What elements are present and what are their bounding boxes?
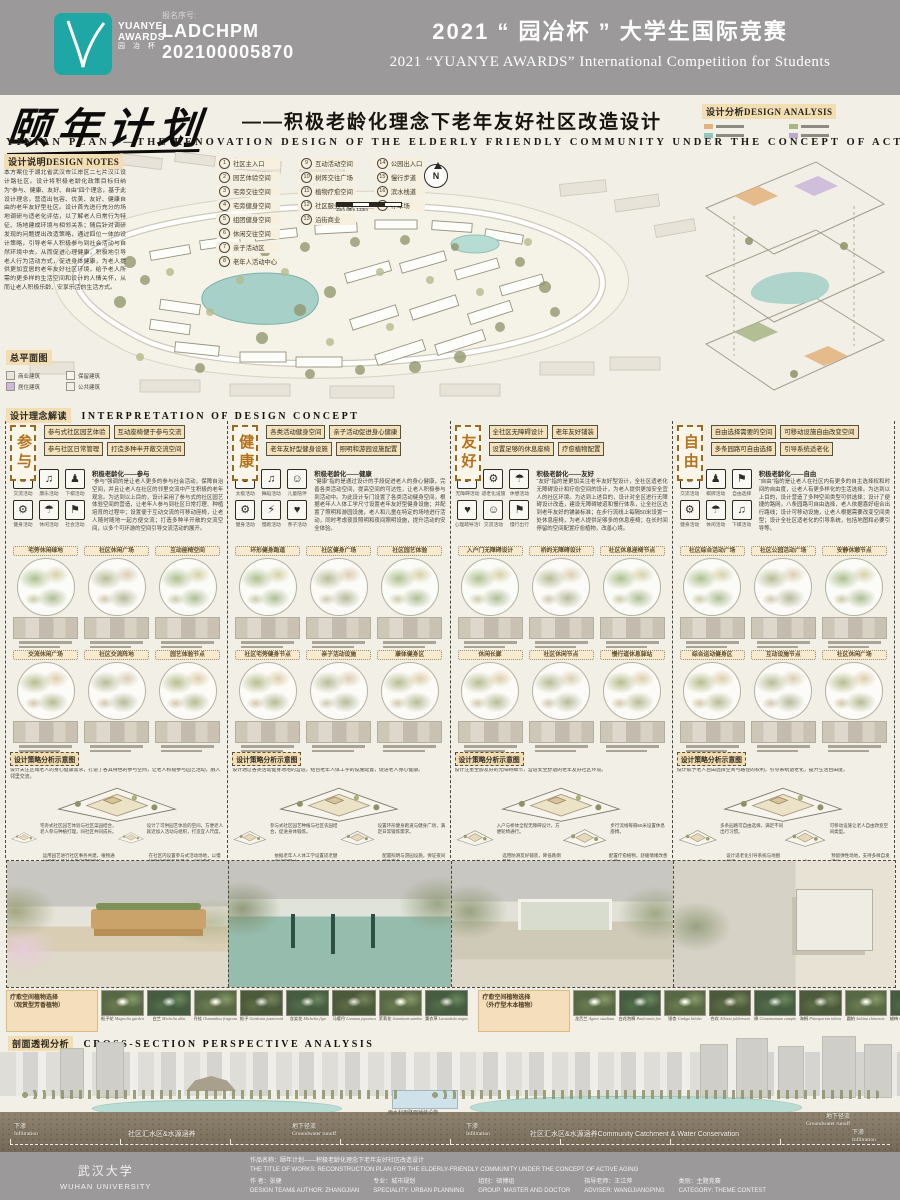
activity-label: 舞蹈活动 bbox=[258, 490, 284, 497]
activity-item: ☺儿童陪伴 bbox=[284, 469, 310, 497]
activity-icon: ♟ bbox=[706, 469, 726, 489]
plant-photo bbox=[286, 990, 329, 1016]
plan-detail-circle bbox=[239, 558, 297, 616]
plan-detail: 社区综合活动广场 bbox=[677, 545, 748, 649]
strategy-label: 设计策略分析示意图 bbox=[232, 752, 301, 766]
plant-photo bbox=[619, 990, 661, 1016]
plan-detail-caption: 园艺体验节点 bbox=[155, 650, 220, 660]
plan-detail-circle bbox=[461, 558, 519, 616]
legend-item: 13沿街商业 bbox=[298, 214, 356, 225]
plant-name-latin: Gardenia jasminoides bbox=[249, 1016, 283, 1021]
activity-item: ☺交流活动 bbox=[480, 500, 506, 528]
paragraph-title: 积极老龄化——参与 bbox=[92, 469, 223, 478]
reference-photo bbox=[84, 617, 149, 639]
activity-item: ♫舞蹈活动 bbox=[258, 469, 284, 497]
strategy-axon-thumb bbox=[783, 823, 827, 851]
logo-text: YUANYE AWARDS 园 冶 杯 bbox=[118, 22, 165, 50]
plan-detail-caption: 环形健身跑道 bbox=[235, 546, 300, 556]
analysis-legend-item bbox=[704, 124, 789, 129]
legend-column-b: 9互动活动空间10树阵交往广场11植物疗愈空间12社区服务中心13沿街商业 bbox=[298, 158, 356, 270]
plan-detail: 综合运动健身区 bbox=[677, 649, 748, 753]
xsec-label: 下渗 bbox=[14, 1124, 26, 1130]
activity-item: ♫下棋活动 bbox=[729, 500, 755, 528]
plan-detail-circle bbox=[239, 662, 297, 720]
plant-name-cn: 龙舌兰 bbox=[575, 1016, 588, 1021]
strategy-axon-thumb bbox=[677, 823, 718, 851]
building-legend-item: 居住建筑 bbox=[6, 382, 66, 391]
strategy-item: 可移动设施让老人自由改变空间类型。 bbox=[783, 823, 890, 853]
plan-detail-circle bbox=[88, 558, 146, 616]
activity-icon: ♟ bbox=[65, 469, 85, 489]
reference-photo bbox=[680, 721, 745, 743]
activity-label: 慢跑活动 bbox=[258, 521, 284, 528]
activity-label: 自由选择 bbox=[729, 490, 755, 497]
activity-item: ♟棋牌活动 bbox=[703, 469, 729, 497]
strategy-section: 设计策略分析示意图 设计赋予老人自由选择空间与路径的权利，引导系统适老化，提升生… bbox=[677, 749, 890, 857]
plant-name-cn: 圆柏 bbox=[847, 1016, 855, 1021]
plan-detail: 交流休闲广场 bbox=[10, 649, 81, 753]
plant-photo bbox=[890, 990, 900, 1016]
strategy-intro: 设计赋予老人自由选择空间与路径的权利，引导系统适老化，提升生活自由度。 bbox=[677, 768, 890, 782]
strategy-label: 设计策略分析示意图 bbox=[455, 752, 524, 766]
plan-detail-caption: 社区健身广场 bbox=[306, 546, 371, 556]
reference-photo bbox=[680, 617, 745, 639]
render-street-pergola bbox=[451, 861, 673, 987]
master-plan-area: 设计说明DESIGN NOTES 本方案位于湖北省武汉市江岸区二七片汉江设计路社… bbox=[0, 152, 900, 405]
reference-photo bbox=[600, 721, 665, 743]
legend-item: 5组团健身空间 bbox=[216, 214, 280, 225]
shrub-row bbox=[20, 1090, 400, 1099]
reference-photo bbox=[822, 721, 887, 743]
plant-photo bbox=[573, 990, 615, 1016]
plant-name-cn: 海桐 bbox=[800, 1016, 808, 1021]
plant-label-line1: 疗愈空间植物选择 bbox=[10, 994, 94, 1002]
plan-detail: 桥的无障碍设计 bbox=[526, 545, 597, 649]
plan-detail: 亲子活动设施 bbox=[303, 649, 374, 753]
plant-name-cn: 蜡梅 bbox=[890, 1016, 898, 1021]
plan-detail: 社区休闲广场 bbox=[81, 545, 152, 649]
concept-keyword: 自由 bbox=[677, 425, 703, 481]
activity-label: 社会活动 bbox=[62, 521, 88, 528]
activity-label: 健身活动 bbox=[677, 521, 703, 528]
plan-detail-caption: 社区公园活动广场 bbox=[751, 546, 816, 556]
legend-text: 树阵交往广场 bbox=[315, 173, 353, 182]
master-plan-label: 总平面图 bbox=[6, 350, 52, 365]
activity-label: 交流活动 bbox=[480, 521, 506, 528]
strategy-label: 设计策略分析示意图 bbox=[10, 752, 79, 766]
activity-label: 慢行出行 bbox=[506, 521, 532, 528]
plant-photo bbox=[332, 990, 375, 1016]
strategy-axon-thumb bbox=[561, 823, 608, 851]
scale-bar-text: 33m 66m 133m bbox=[336, 207, 402, 212]
paragraph-text: “参与”强调的是让老人更多的参与社会活动，保障自治空间，并且让老人在社区的邻里交… bbox=[92, 479, 223, 534]
project-subtitle-cn: ——积极老龄化理念下老年友好社区改造设计 bbox=[242, 107, 662, 134]
xsec-label-en: Infiltration bbox=[466, 1131, 490, 1138]
plant-chip: 马缨丹 Lantana japonica bbox=[332, 990, 375, 1032]
design-analysis-label-cn: 设计分析 bbox=[706, 107, 744, 117]
activity-icon: ⚑ bbox=[65, 500, 85, 520]
registration-number: 报名序号: LADCHPM 202100005870 bbox=[162, 10, 294, 62]
reference-photo bbox=[235, 721, 300, 743]
legend-text: 慢行步道 bbox=[391, 173, 416, 182]
legend-item: 6休闲交往空间 bbox=[216, 228, 280, 239]
design-analysis-label-en: DESIGN ANALYSIS bbox=[744, 107, 832, 117]
activity-item: ⚑慢行出行 bbox=[506, 500, 532, 528]
concept-tag: 各类活动健身空间 bbox=[266, 425, 325, 439]
registration-label: 报名序号: bbox=[162, 10, 294, 21]
legend-number: 10 bbox=[301, 172, 312, 183]
category-credit: 类别：主题竞赛CATEGORY: THEME CONTEST bbox=[679, 1178, 766, 1196]
activity-item: ☂休闲活动 bbox=[703, 500, 729, 528]
plant-chip: 银杏 Ginkgo biloba bbox=[664, 990, 706, 1032]
paragraph-title: 积极老龄化——自由 bbox=[759, 469, 890, 478]
strategy-item: 入户与桥体全程无障碍设计，方便轮椅通行。 bbox=[455, 823, 562, 853]
header-bar: YUANYE AWARDS 园 冶 杯 报名序号: LADCHPM 202100… bbox=[0, 0, 900, 95]
strategy-item: 宅旁式社区园艺体验与社区菜园结合，老人参与种植打理，同社区共同成长。 bbox=[10, 823, 117, 853]
reference-photo bbox=[235, 617, 300, 639]
concept-columns: 参与 参与式社区园艺体验互动座椅便于参与交流参与社区日常管理打造多种半开敞交流空… bbox=[5, 421, 895, 858]
concept-tag: 参与式社区园艺体验 bbox=[44, 425, 110, 439]
plan-detail-circle bbox=[310, 662, 368, 720]
concept-tag: 互动座椅便于参与交流 bbox=[114, 425, 186, 439]
reference-photo bbox=[306, 617, 371, 639]
competition-title-en: 2021 “YUANYE AWARDS” International Compe… bbox=[330, 54, 890, 71]
activity-label: 亲子活动 bbox=[284, 521, 310, 528]
concept-tag: 参与社区日常管理 bbox=[44, 442, 103, 456]
strategy-item: 设计了可供园艺体验的空间，方便老人就近加入活动与组织，打造宜人尺度。 bbox=[117, 823, 224, 853]
credit-lines: 作品名称：颐年计划——积极老龄化理念下老年友好社区改造设计 THE TITLE … bbox=[250, 1157, 890, 1196]
reference-photo bbox=[377, 721, 442, 743]
plan-detail-circle bbox=[159, 558, 217, 616]
activity-icon: ☂ bbox=[39, 500, 59, 520]
concept-section-heading: 设计理念解读 INTERPRETATION OF DESIGN CONCEPT bbox=[6, 406, 894, 420]
legend-text: 互动活动空间 bbox=[315, 159, 353, 168]
plant-chip: 栀子花 Magnolia gardenia bbox=[101, 990, 144, 1032]
activity-label: 休闲活动 bbox=[36, 521, 62, 528]
concept-tag: 多条园路可自由选择 bbox=[711, 442, 777, 456]
competition-title: 2021 “ 园冶杯 ” 大学生国际竞赛 2021 “YUANYE AWARDS… bbox=[330, 14, 890, 71]
plan-detail-caption: 社区宅旁健身节点 bbox=[235, 650, 300, 660]
plant-group-label: 疗愈空间植物选择 （外疗型木本植物） bbox=[478, 990, 570, 1032]
university: 武汉大学 WUHAN UNIVERSITY bbox=[60, 1162, 151, 1191]
plant-chip: 栀子 Gardenia jasminoides bbox=[240, 990, 283, 1032]
concept-tag: 自由选择需要的空间 bbox=[711, 425, 777, 439]
xsec-label: 雨水利用路面铺装设施 bbox=[388, 1110, 438, 1116]
strategy-intro: 设计注重全龄友好的无障碍细节，营造安全舒适的老年友好社区环境。 bbox=[455, 768, 668, 782]
plant-name-cn: 茉莉花 bbox=[379, 1016, 392, 1021]
plant-name-latin: Michelia figo bbox=[303, 1016, 325, 1021]
activity-icon: ♫ bbox=[39, 469, 59, 489]
activity-label: 康乐活动 bbox=[36, 490, 62, 497]
plan-detail-circle bbox=[603, 558, 661, 616]
activity-item: ⚙健身活动 bbox=[232, 500, 258, 528]
activity-icon: ☺ bbox=[483, 500, 503, 520]
reference-photo bbox=[84, 721, 149, 743]
plant-chip: 圆柏 Sabina chinensis bbox=[845, 990, 887, 1032]
plan-detail-caption: 宅旁休闲绿地 bbox=[13, 546, 78, 556]
legend-column-c: 14公园出入口15慢行步道16滨水栈道17停车场 bbox=[374, 158, 425, 270]
plan-detail: 社区园艺体验 bbox=[374, 545, 445, 649]
reference-photo bbox=[155, 721, 220, 743]
concept-keyword: 健康 bbox=[232, 425, 258, 481]
north-arrow-icon: N bbox=[424, 164, 448, 188]
legend-number: 15 bbox=[377, 172, 388, 183]
activity-item: ⚙健身活动 bbox=[677, 500, 703, 528]
concept-paragraph: 积极老龄化——自由 “自由”指的是让老人在社区内有更多的自主选择权和时间的自由度… bbox=[755, 469, 890, 545]
activity-label: 太极活动 bbox=[232, 490, 258, 497]
activity-label: 无障碍活动 bbox=[455, 490, 481, 497]
plan-detail-caption: 桥的无障碍设计 bbox=[529, 546, 594, 556]
plan-detail: 社区休闲广场 bbox=[819, 649, 890, 753]
design-notes-label-en: DESIGN NOTES bbox=[46, 157, 119, 167]
legend-number: 9 bbox=[301, 158, 312, 169]
activity-label: 交流活动 bbox=[10, 490, 36, 497]
strategy-section: 设计策略分析示意图 设计关注区域老人的身心健康需求，打造了各具特色的参与空间，让… bbox=[10, 749, 223, 857]
legend-number: 13 bbox=[301, 214, 312, 225]
legend-item: 9互动活动空间 bbox=[298, 158, 356, 169]
reference-photo bbox=[458, 721, 523, 743]
plant-name-cn: 白花泡桐 bbox=[619, 1016, 636, 1021]
strategy-axon-hero bbox=[10, 783, 223, 823]
render-community-garden bbox=[7, 861, 228, 987]
xsec-label: 下渗 bbox=[852, 1130, 864, 1136]
activity-label: 交流活动 bbox=[677, 490, 703, 497]
legend-text: 公园出入口 bbox=[391, 159, 422, 168]
concept-column-friendly: 友好 全社区无障碍设计老年友好铺装设置足够的休息座椅疗愈植物配置 ♿无障碍活动⚙… bbox=[451, 421, 673, 858]
concept-paragraph: 积极老龄化——参与 “参与”强调的是让老人更多的参与社会活动，保障自治空间，并且… bbox=[88, 469, 223, 545]
legend-number: 3 bbox=[219, 186, 230, 197]
plant-name-latin: Pittosporum tobira bbox=[809, 1016, 841, 1021]
university-cn: 武汉大学 bbox=[60, 1162, 151, 1179]
render-fitness-area bbox=[228, 861, 450, 987]
legend-text: 老年人活动中心 bbox=[233, 257, 277, 266]
design-notes-text: 本方案位于湖北省武汉市江岸区二七片汉江设计路社区。设计将积极老龄化政策目标归纳为… bbox=[4, 169, 126, 293]
plant-name-latin: Osmanthus fragrans bbox=[203, 1016, 237, 1021]
concept-tag: 老年友好型健身设施 bbox=[266, 442, 332, 456]
activity-label: 下棋活动 bbox=[729, 521, 755, 528]
legend-number: 1 bbox=[219, 158, 230, 169]
activity-item: ♟下棋活动 bbox=[62, 469, 88, 497]
perspective-renders bbox=[6, 860, 896, 988]
strategy-axon-hero bbox=[677, 783, 890, 823]
legend-text: 休闲交往空间 bbox=[233, 229, 271, 238]
plan-detail: 宅旁休闲绿地 bbox=[10, 545, 81, 649]
footer-credits: 武汉大学 WUHAN UNIVERSITY 作品名称：颐年计划——积极老龄化理念… bbox=[0, 1152, 900, 1200]
plant-name-latin: Cinnamomum camphora bbox=[760, 1016, 797, 1021]
plant-label-line1: 疗愈空间植物选择 bbox=[482, 994, 566, 1002]
building-legend-text: 公共建筑 bbox=[78, 383, 100, 391]
legend-text: 亲子活动区 bbox=[233, 243, 264, 252]
building-legend-text: 居住建筑 bbox=[18, 383, 40, 391]
plan-detail-caption: 慢行道休息驿站 bbox=[600, 650, 665, 660]
analysis-legend bbox=[704, 122, 874, 140]
concept-tag: 全社区无障碍设计 bbox=[489, 425, 548, 439]
legend-column-a: 1社区主入口2园艺体验空间3宅旁交往空间4宅旁健身空间5组团健身空间6休闲交往空… bbox=[216, 158, 280, 270]
activity-item: ⚑社会活动 bbox=[62, 500, 88, 528]
legend-item: 16滨水栈道 bbox=[374, 186, 425, 197]
plan-detail: 入户门无障碍设计 bbox=[455, 545, 526, 649]
paragraph-text: “友好”指的是更加关注老年友好型设计，全社区适老化无障碍设计和疗愈空间的设计，为… bbox=[537, 479, 668, 534]
plan-detail: 互动设施节点 bbox=[748, 649, 819, 753]
legend-number: 14 bbox=[377, 158, 388, 169]
paragraph-text: “健康”指的是通过设计的手段促进老人的身心健康，完善各类活动空间，提高空间的可达… bbox=[314, 479, 445, 534]
activity-item: ⚙适老化设施 bbox=[480, 469, 506, 497]
plan-detail: 社区交流阵地 bbox=[81, 649, 152, 753]
activity-icon: ⚙ bbox=[680, 500, 700, 520]
plan-detail-circle bbox=[754, 558, 812, 616]
strategy-axon-thumb bbox=[232, 823, 268, 851]
plan-detail-circle bbox=[159, 662, 217, 720]
exploded-axonometric-diagram bbox=[694, 146, 894, 396]
paragraph-text: “自由”指的是让老人在社区内有更多的自主选择权和时间的自由度，让老人有更多样化的… bbox=[759, 479, 890, 534]
strategy-text: 多条园路可自由选择，满足不同出行习惯。 bbox=[718, 823, 783, 853]
legend-item: 15慢行步道 bbox=[374, 172, 425, 183]
legend-swatch bbox=[6, 371, 15, 380]
plan-detail-caption: 互动座椅空间 bbox=[155, 546, 220, 556]
concept-tag: 亲子活动促进身心健康 bbox=[329, 425, 401, 439]
analysis-legend-item bbox=[789, 133, 874, 138]
reference-photo bbox=[600, 617, 665, 639]
activity-label: 休闲活动 bbox=[703, 521, 729, 528]
legend-text: 组团健身空间 bbox=[233, 215, 271, 224]
activity-label: 棋牌活动 bbox=[703, 490, 729, 497]
logo-y-glyph bbox=[54, 13, 112, 75]
plant-photo bbox=[799, 990, 841, 1016]
plant-name-latin: Paulownia fortunei bbox=[636, 1016, 660, 1021]
activity-icon: ⚙ bbox=[235, 500, 255, 520]
analysis-legend-item bbox=[789, 124, 874, 129]
plan-detail: 社区休息座椅节点 bbox=[597, 545, 668, 649]
cross-section-diagram: 下渗Infiltration 社区汇水区&水源涵养 地下径流Groundwate… bbox=[0, 1050, 900, 1152]
plant-name-cn: 白兰 bbox=[152, 1016, 160, 1021]
plan-detail-caption: 入户门无障碍设计 bbox=[458, 546, 523, 556]
reference-photo bbox=[751, 721, 816, 743]
concept-tag: 可移动设施自由改变空间 bbox=[780, 425, 858, 439]
plan-detail-caption: 社区休闲广场 bbox=[822, 650, 887, 660]
strategy-axon-thumb bbox=[10, 823, 38, 851]
university-en: WUHAN UNIVERSITY bbox=[60, 1182, 151, 1191]
plant-name-latin: Lantana japonica bbox=[346, 1016, 376, 1021]
strategy-text: 可移动设施让老人自由改变空间类型。 bbox=[828, 823, 890, 853]
plan-detail-caption: 交流休闲广场 bbox=[13, 650, 78, 660]
plant-group-aromatic: 疗愈空间植物选择 （观赏型芳香植物） 栀子花 Magnolia gardenia… bbox=[6, 990, 468, 1032]
plan-detail-caption: 亲子活动设施 bbox=[306, 650, 371, 660]
building-legend-text: 商业建筑 bbox=[18, 372, 40, 380]
activity-item: ☂休憩活动 bbox=[506, 469, 532, 497]
activity-icon: ♥ bbox=[457, 500, 477, 520]
plant-name-latin: Michelia alba bbox=[162, 1016, 185, 1021]
reference-photo bbox=[377, 617, 442, 639]
activity-item: ♥亲子活动 bbox=[284, 500, 310, 528]
plan-detail-caption: 社区综合活动广场 bbox=[680, 546, 745, 556]
legend-item: 1社区主入口 bbox=[216, 158, 280, 169]
strategy-text: 设置环形健身跑道与健身广场，满足日常锻炼需求。 bbox=[376, 823, 446, 853]
plant-name-cn: 合欢 bbox=[710, 1016, 718, 1021]
plant-name-latin: Sabina chinensis bbox=[856, 1016, 884, 1021]
plant-name-latin: Lavandula angustifolia bbox=[439, 1016, 469, 1021]
legend-text: 滨水栈道 bbox=[391, 187, 416, 196]
plant-label-line2: （观赏型芳香植物） bbox=[10, 1002, 94, 1010]
analysis-legend-item bbox=[704, 133, 789, 138]
plant-chip: 茉莉花 Jasminum sambac bbox=[379, 990, 422, 1032]
activity-icon: ⚙ bbox=[13, 500, 33, 520]
plan-detail-circle bbox=[754, 662, 812, 720]
strategy-axon-thumb bbox=[339, 823, 376, 851]
plant-chip: 樟 Cinnamomum camphora bbox=[754, 990, 796, 1032]
plant-chip: 合欢 Albizia julibrissin bbox=[709, 990, 751, 1032]
plan-detail: 互动座椅空间 bbox=[152, 545, 223, 649]
building-legend-item: 商业建筑 bbox=[6, 371, 66, 380]
legend-text: 社区主入口 bbox=[233, 159, 264, 168]
plan-detail-circle bbox=[683, 662, 741, 720]
plan-detail: 社区公园活动广场 bbox=[748, 545, 819, 649]
activity-item: ⚡慢跑活动 bbox=[258, 500, 284, 528]
building-legend: 商业建筑保留建筑居住建筑公共建筑 bbox=[6, 370, 126, 392]
plant-chip: 龙舌兰 Agave sisalana bbox=[573, 990, 615, 1032]
building-legend-item: 保留建筑 bbox=[66, 371, 126, 380]
activity-icon: ⚑ bbox=[509, 500, 529, 520]
activity-label: 儿童陪伴 bbox=[284, 490, 310, 497]
strategy-section: 设计策略分析示意图 设计注重全龄友好的无障碍细节，营造安全舒适的老年友好社区环境… bbox=[455, 749, 668, 857]
strategy-text: 入户与桥体全程无障碍设计，方便轮椅通行。 bbox=[495, 823, 562, 853]
activity-icon: ☂ bbox=[509, 469, 529, 489]
plant-chip: 丹桂 Osmanthus fragrans bbox=[194, 990, 237, 1032]
strategy-item: 设置环形健身跑道与健身广场，满足日常锻炼需求。 bbox=[339, 823, 446, 853]
plant-name-cn: 银杏 bbox=[668, 1016, 676, 1021]
plant-name-latin: Albizia julibrissin bbox=[720, 1016, 750, 1021]
plan-detail-circle bbox=[310, 558, 368, 616]
activity-icon: ♫ bbox=[732, 500, 752, 520]
design-analysis-panel: 设计分析DESIGN ANALYSIS bbox=[694, 102, 896, 402]
plant-photo bbox=[240, 990, 283, 1016]
reference-photo bbox=[529, 721, 594, 743]
strategy-text: 参与式社区园艺种植与社区农园结合，促进身体锻炼。 bbox=[268, 823, 339, 853]
legend-item: 8老年人活动中心 bbox=[216, 256, 280, 267]
design-notes-label: 设计说明DESIGN NOTES bbox=[4, 154, 123, 169]
activity-label: 下棋活动 bbox=[62, 490, 88, 497]
legend-item: 3宅旁交往空间 bbox=[216, 186, 280, 197]
xsec-label: 地下径流 bbox=[826, 1114, 850, 1120]
speciality-credit: 专业：城市规划SPECIALITY: URBAN PLANNING bbox=[373, 1178, 464, 1196]
legend-number: 6 bbox=[219, 228, 230, 239]
strategy-axon-thumb bbox=[117, 823, 145, 851]
strategy-axon-hero bbox=[232, 783, 445, 823]
activity-icon: ♥ bbox=[287, 500, 307, 520]
xsec-label: 社区汇水区&水源涵养 bbox=[128, 1131, 196, 1138]
plan-legend: 1社区主入口2园艺体验空间3宅旁交往空间4宅旁健身空间5组团健身空间6休闲交往空… bbox=[216, 158, 443, 270]
activity-label: 健身活动 bbox=[232, 521, 258, 528]
strategy-item: 参与式社区园艺种植与社区农园结合，促进身体锻炼。 bbox=[232, 823, 339, 853]
plan-detail-circle bbox=[381, 558, 439, 616]
legend-text: 沿街商业 bbox=[315, 215, 340, 224]
strategy-section: 设计策略分析示意图 设计通过各类活动健身场地的营造，结合老年人体工学的设施配置，… bbox=[232, 749, 445, 857]
strategy-item: 多条园路可自由选择，满足不同出行习惯。 bbox=[677, 823, 784, 853]
plant-chip: 含笑花 Michelia figo bbox=[286, 990, 329, 1032]
concept-paragraph: 积极老龄化——友好 “友好”指的是更加关注老年友好型设计，全社区适老化无障碍设计… bbox=[533, 469, 668, 545]
plant-name-cn: 含笑花 bbox=[290, 1016, 303, 1021]
activity-icon: ⚙ bbox=[483, 469, 503, 489]
building-legend-text: 保留建筑 bbox=[78, 372, 100, 380]
plant-name-latin: Jasminum sambac bbox=[393, 1016, 423, 1021]
plant-photo bbox=[101, 990, 144, 1016]
plan-detail-circle bbox=[683, 558, 741, 616]
legend-swatch bbox=[66, 382, 75, 391]
legend-number: 12 bbox=[301, 200, 312, 211]
plan-detail-circle bbox=[603, 662, 661, 720]
activity-icon: ♫ bbox=[261, 469, 281, 489]
concept-tag: 打造多种半开敞交流空间 bbox=[107, 442, 185, 456]
plan-detail: 社区休闲节点 bbox=[526, 649, 597, 753]
